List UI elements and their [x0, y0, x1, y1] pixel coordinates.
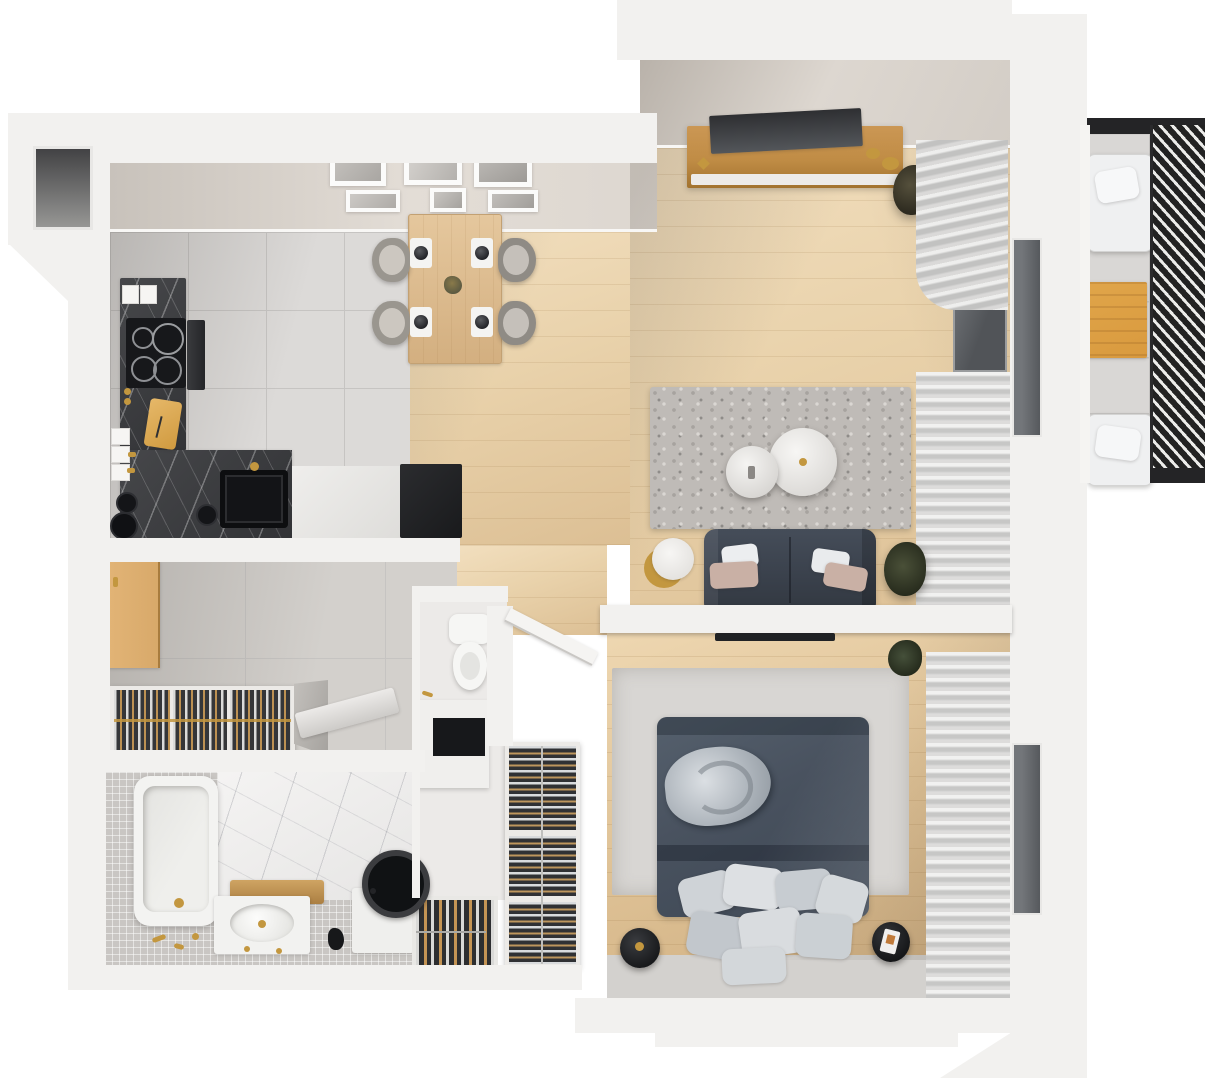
- toilet-tank: [449, 614, 491, 644]
- bedroom-tv-panel: [715, 633, 835, 641]
- pot-3: [196, 504, 218, 526]
- sofa-seat-divider: [789, 537, 791, 603]
- counter-gap-cabinet: [292, 466, 400, 538]
- console-decor-bowl-1: [866, 148, 880, 159]
- sofa-pillow-blush-left: [709, 561, 758, 589]
- balcony-wall-lip: [1080, 125, 1090, 483]
- louver-bottom-rail: [1150, 468, 1205, 483]
- louver-screen: [1150, 125, 1205, 483]
- sink-faucet-icon: [250, 462, 259, 471]
- bowl-icon: [475, 246, 489, 260]
- placemat-3: [471, 238, 493, 268]
- bottom-wall-protrusion: [655, 1033, 958, 1047]
- sofa-side-table: [652, 538, 694, 580]
- shoe-rack-rail: [416, 931, 486, 933]
- entry-door: [108, 561, 160, 668]
- hall-closet: [110, 686, 295, 756]
- kitchen-sink: [220, 470, 288, 528]
- upper-cabinet-2: [140, 285, 157, 304]
- upper-cabinet-1: [122, 285, 139, 304]
- bowl-icon: [414, 315, 428, 329]
- wardrobe-column: [505, 742, 580, 968]
- living-bedroom-divider-wall: [600, 605, 1012, 633]
- right-wall-window-lower: [1012, 743, 1042, 915]
- bowl-icon: [414, 246, 428, 260]
- placemat-1: [410, 238, 432, 268]
- wc-top-wall: [412, 586, 508, 602]
- gold-jar-2: [124, 398, 131, 405]
- bedroom-left-wall: [487, 606, 513, 746]
- nightstand-left: [620, 928, 660, 968]
- wall-frame-6: [488, 190, 538, 212]
- shoe-rack: [412, 896, 498, 976]
- vanity-knob-2: [276, 948, 282, 954]
- gold-jar-1: [124, 388, 131, 395]
- sofa-plant: [884, 542, 926, 596]
- left-wedge-wall: [8, 243, 68, 301]
- toilet-bowl: [453, 642, 487, 690]
- bath-accessory-3: [192, 933, 199, 940]
- bottom-wall-left: [68, 965, 582, 990]
- gold-utensil-1: [128, 452, 136, 457]
- coffee-table-large: [769, 428, 837, 496]
- kitchen-skirting: [110, 229, 657, 232]
- dark-appliance: [400, 464, 462, 538]
- gold-utensil-2: [127, 468, 135, 473]
- console-front-lip: [691, 174, 899, 185]
- hall-kitchen-wall: [68, 538, 460, 562]
- living-curtain-upper: [916, 140, 1008, 310]
- wc-inset-cabinet: [417, 700, 489, 788]
- dining-chair-3: [498, 238, 536, 282]
- closet-rail: [114, 719, 291, 722]
- wall-frame-4: [346, 190, 400, 212]
- built-in-oven: [187, 320, 205, 390]
- bathroom-top-wall: [68, 750, 425, 772]
- side-cabinet-1: [111, 428, 130, 445]
- door-handle-icon: [113, 577, 118, 587]
- cooktop: [126, 318, 186, 388]
- wc-black-niche: [433, 718, 485, 756]
- coffee-table-small: [726, 446, 778, 498]
- bottom-wall-bedroom: [575, 998, 1012, 1033]
- placemat-2: [410, 307, 432, 337]
- dining-chair-4: [498, 301, 536, 345]
- pot-1: [116, 492, 138, 514]
- kitchen-top-wall: [85, 113, 657, 163]
- tv-panel: [709, 108, 863, 154]
- balcony-table: [1087, 282, 1147, 358]
- washer-knob-icon: [370, 888, 376, 894]
- balcony-bench-top: [1087, 154, 1153, 252]
- vanity-faucet-icon: [258, 920, 266, 928]
- table-plant-icon: [444, 276, 462, 294]
- wardrobe-rail: [541, 746, 543, 964]
- dining-chair-1: [372, 238, 410, 282]
- pot-2: [110, 512, 138, 540]
- dark-brush: [328, 928, 344, 950]
- console-decor-bowl-2: [882, 157, 899, 170]
- right-wall-window-upper: [1012, 238, 1042, 437]
- foot-pillow: [721, 946, 787, 985]
- left-wall: [68, 243, 110, 762]
- bathtub-faucet-icon: [174, 898, 184, 908]
- vanity: [214, 880, 324, 954]
- pillow-pile: [678, 866, 870, 988]
- bathtub-basin: [143, 786, 209, 912]
- nightstand-gold-dot: [635, 942, 644, 951]
- bedroom-corner-plant: [888, 640, 922, 676]
- right-wall-wedge: [940, 1033, 1087, 1078]
- bowl-icon: [475, 315, 489, 329]
- utility-niche: [33, 146, 93, 230]
- balcony-bench-bottom: [1087, 414, 1153, 486]
- bathroom-left-wall: [68, 760, 106, 990]
- bedroom-curtain: [926, 652, 1012, 1000]
- wc-left-wall: [412, 590, 420, 898]
- living-top-wall: [617, 0, 1012, 60]
- burner-large-icon: [152, 323, 184, 355]
- vanity-knob-1: [244, 946, 250, 952]
- floor-plan-canvas: [0, 0, 1205, 1080]
- burner-medium-icon: [153, 356, 182, 385]
- foot-pillow: [795, 912, 854, 960]
- toilet-seat-inner: [460, 652, 480, 680]
- living-curtain-lower: [916, 372, 1010, 620]
- book-art: [886, 934, 896, 945]
- burner-small-left-icon: [132, 327, 154, 349]
- table-centerpiece-icon: [799, 458, 807, 466]
- wall-frame-5: [430, 188, 466, 212]
- dining-chair-2: [372, 301, 410, 345]
- remote-icon: [748, 466, 755, 479]
- bench-pillow: [1094, 424, 1142, 462]
- bench-pillow: [1094, 166, 1141, 205]
- placemat-4: [471, 307, 493, 337]
